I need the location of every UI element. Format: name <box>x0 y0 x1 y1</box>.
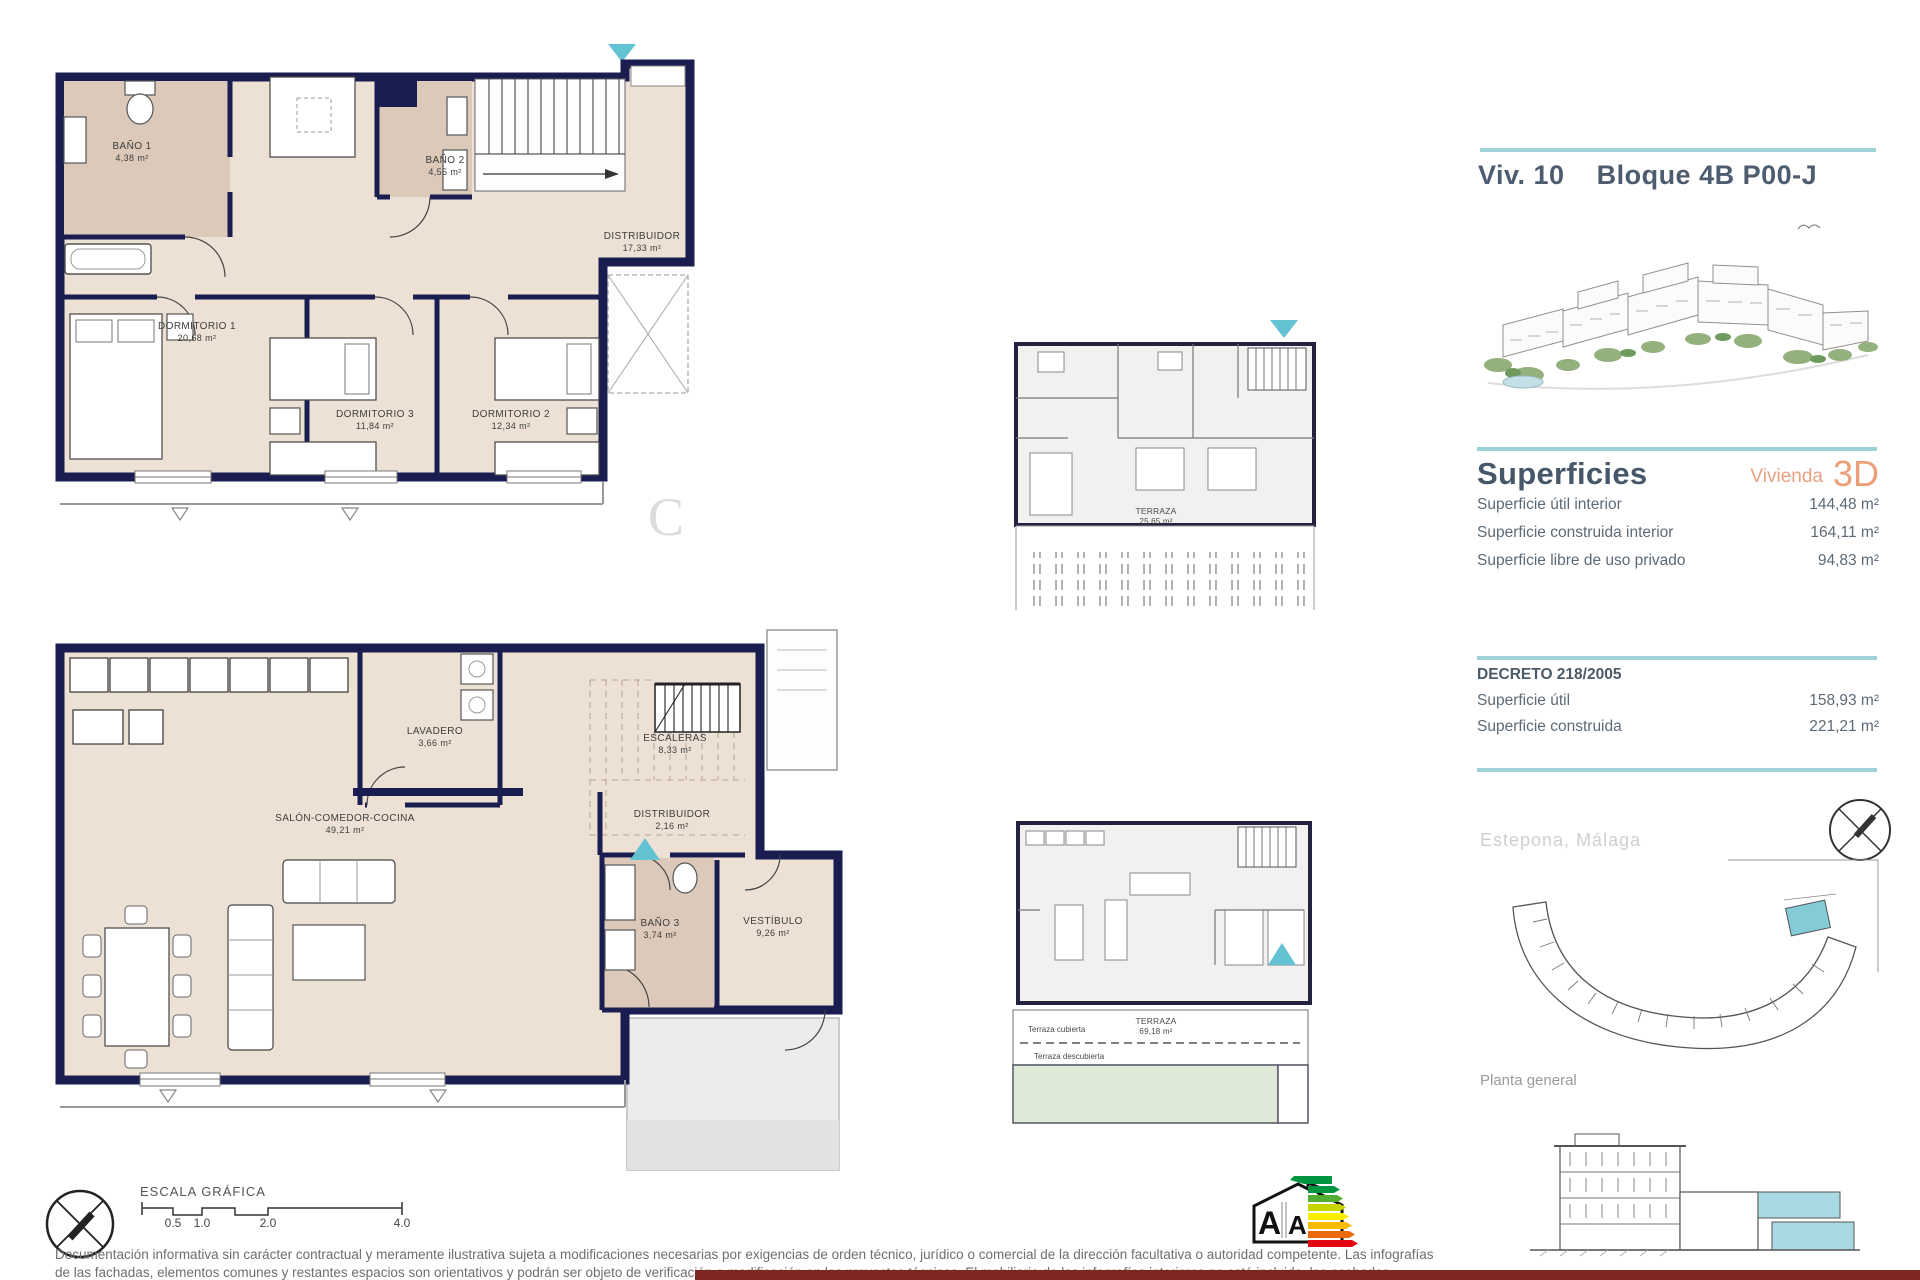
plan-sheet-page: BAÑO 1 4,38 m² BAÑO 2 4,55 m² DISTRIBUID… <box>0 0 1920 1280</box>
section-marker-icon <box>1270 320 1298 338</box>
room-label-distribuidor-lower: DISTRIBUIDOR 2,16 m² <box>634 808 710 833</box>
divider-line <box>1477 656 1877 660</box>
energy-certificate-logo: A A <box>1248 1176 1358 1248</box>
disclaimer-line-1: Documentación informativa sin carácter c… <box>55 1246 1905 1264</box>
scale-tick: 2.0 <box>260 1216 277 1230</box>
section-marker-icon <box>608 44 636 62</box>
thumb-lower-terraza-label: TERRAZA 69,18 m² <box>1135 1016 1176 1037</box>
bottom-bar <box>695 1270 1920 1280</box>
divider-line <box>1477 768 1877 772</box>
room-label-escaleras: ESCALERAS 8,33 m² <box>643 732 707 757</box>
room-label-lavadero: LAVADERO 3,66 m² <box>407 725 463 750</box>
terraza-cubierta-label: Terraza cubierta <box>1028 1025 1085 1034</box>
scale-tick: 4.0 <box>394 1216 411 1230</box>
city-label: Estepona, Málaga <box>1480 830 1641 851</box>
unit-number: Viv. 10 <box>1478 160 1565 190</box>
room-label-salon: SALÓN-COMEDOR-COCINA 49,21 m² <box>275 812 415 837</box>
room-label-vestibulo: VESTÍBULO 9,26 m² <box>743 915 803 940</box>
room-label-bano3: BAÑO 3 3,74 m² <box>640 917 679 942</box>
divider-line <box>1480 148 1876 152</box>
thumbnail-upper-plan <box>1008 318 1323 610</box>
energy-letter-left: A <box>1258 1205 1281 1241</box>
vivienda-label: Vivienda <box>1750 466 1823 492</box>
lower-floor-plan-container: LAVADERO 3,66 m² ESCALERAS 8,33 m² SALÓN… <box>45 620 845 1180</box>
superficies-title: Superficies <box>1477 456 1647 492</box>
room-label-dormitorio3: DORMITORIO 3 11,84 m² <box>336 408 414 433</box>
upper-floor-plan-container: BAÑO 1 4,38 m² BAÑO 2 4,55 m² DISTRIBUID… <box>45 40 697 522</box>
block-name: Bloque 4B P00-J <box>1597 160 1818 190</box>
site-plan <box>1488 852 1888 1067</box>
divider-line <box>1477 447 1877 451</box>
watermark-letter: C <box>648 486 684 548</box>
upper-floor-plan <box>45 40 697 522</box>
terraza-descubierta-label: Terraza descubierta <box>1034 1052 1104 1061</box>
decreto-title: DECRETO 218/2005 <box>1477 666 1621 684</box>
planta-general-label: Planta general <box>1480 1072 1577 1089</box>
scale-title: ESCALA GRÁFICA <box>140 1184 266 1199</box>
energy-logo-graphic: A A <box>1248 1176 1358 1248</box>
room-label-bano1: BAÑO 1 4,38 m² <box>112 140 151 165</box>
energy-letter-right: A <box>1288 1210 1307 1240</box>
building-3d-render <box>1468 205 1888 440</box>
room-label-distribuidor-upper: DISTRIBUIDOR 17,33 m² <box>604 230 680 255</box>
highlighted-unit <box>1786 900 1831 936</box>
thumb-upper-terraza-label: TERRAZA 25,65 m² <box>1135 506 1176 527</box>
superficies-row: Superficie construida interior164,11 m² <box>1477 524 1879 542</box>
superficies-header: Superficies Vivienda 3D <box>1477 456 1879 492</box>
lower-floor-plan <box>45 620 845 1180</box>
bird-icon <box>1798 225 1820 229</box>
superficies-row: Superficie útil interior144,48 m² <box>1477 496 1879 514</box>
room-label-dormitorio2: DORMITORIO 2 12,34 m² <box>472 408 550 433</box>
page-title: Viv. 10Bloque 4B P00-J <box>1478 160 1817 191</box>
room-label-bano2: BAÑO 2 4,55 m² <box>425 154 464 179</box>
badge-3d: 3D <box>1833 456 1879 492</box>
thumbnail-lower-plan-container: TERRAZA 69,18 m² Terraza cubierta Terraz… <box>1010 815 1325 1130</box>
room-label-dormitorio1: DORMITORIO 1 20,68 m² <box>158 320 236 345</box>
thumbnail-upper-plan-container: TERRAZA 25,65 m² <box>1008 318 1323 610</box>
decreto-row: Superficie útil158,93 m² <box>1477 692 1879 710</box>
decreto-row: Superficie construida221,21 m² <box>1477 718 1879 736</box>
superficies-row: Superficie libre de uso privado94,83 m² <box>1477 552 1879 570</box>
scale-tick: 1.0 <box>194 1216 211 1230</box>
thumbnail-lower-plan <box>1010 815 1325 1130</box>
scale-tick: 0.5 <box>165 1216 182 1230</box>
